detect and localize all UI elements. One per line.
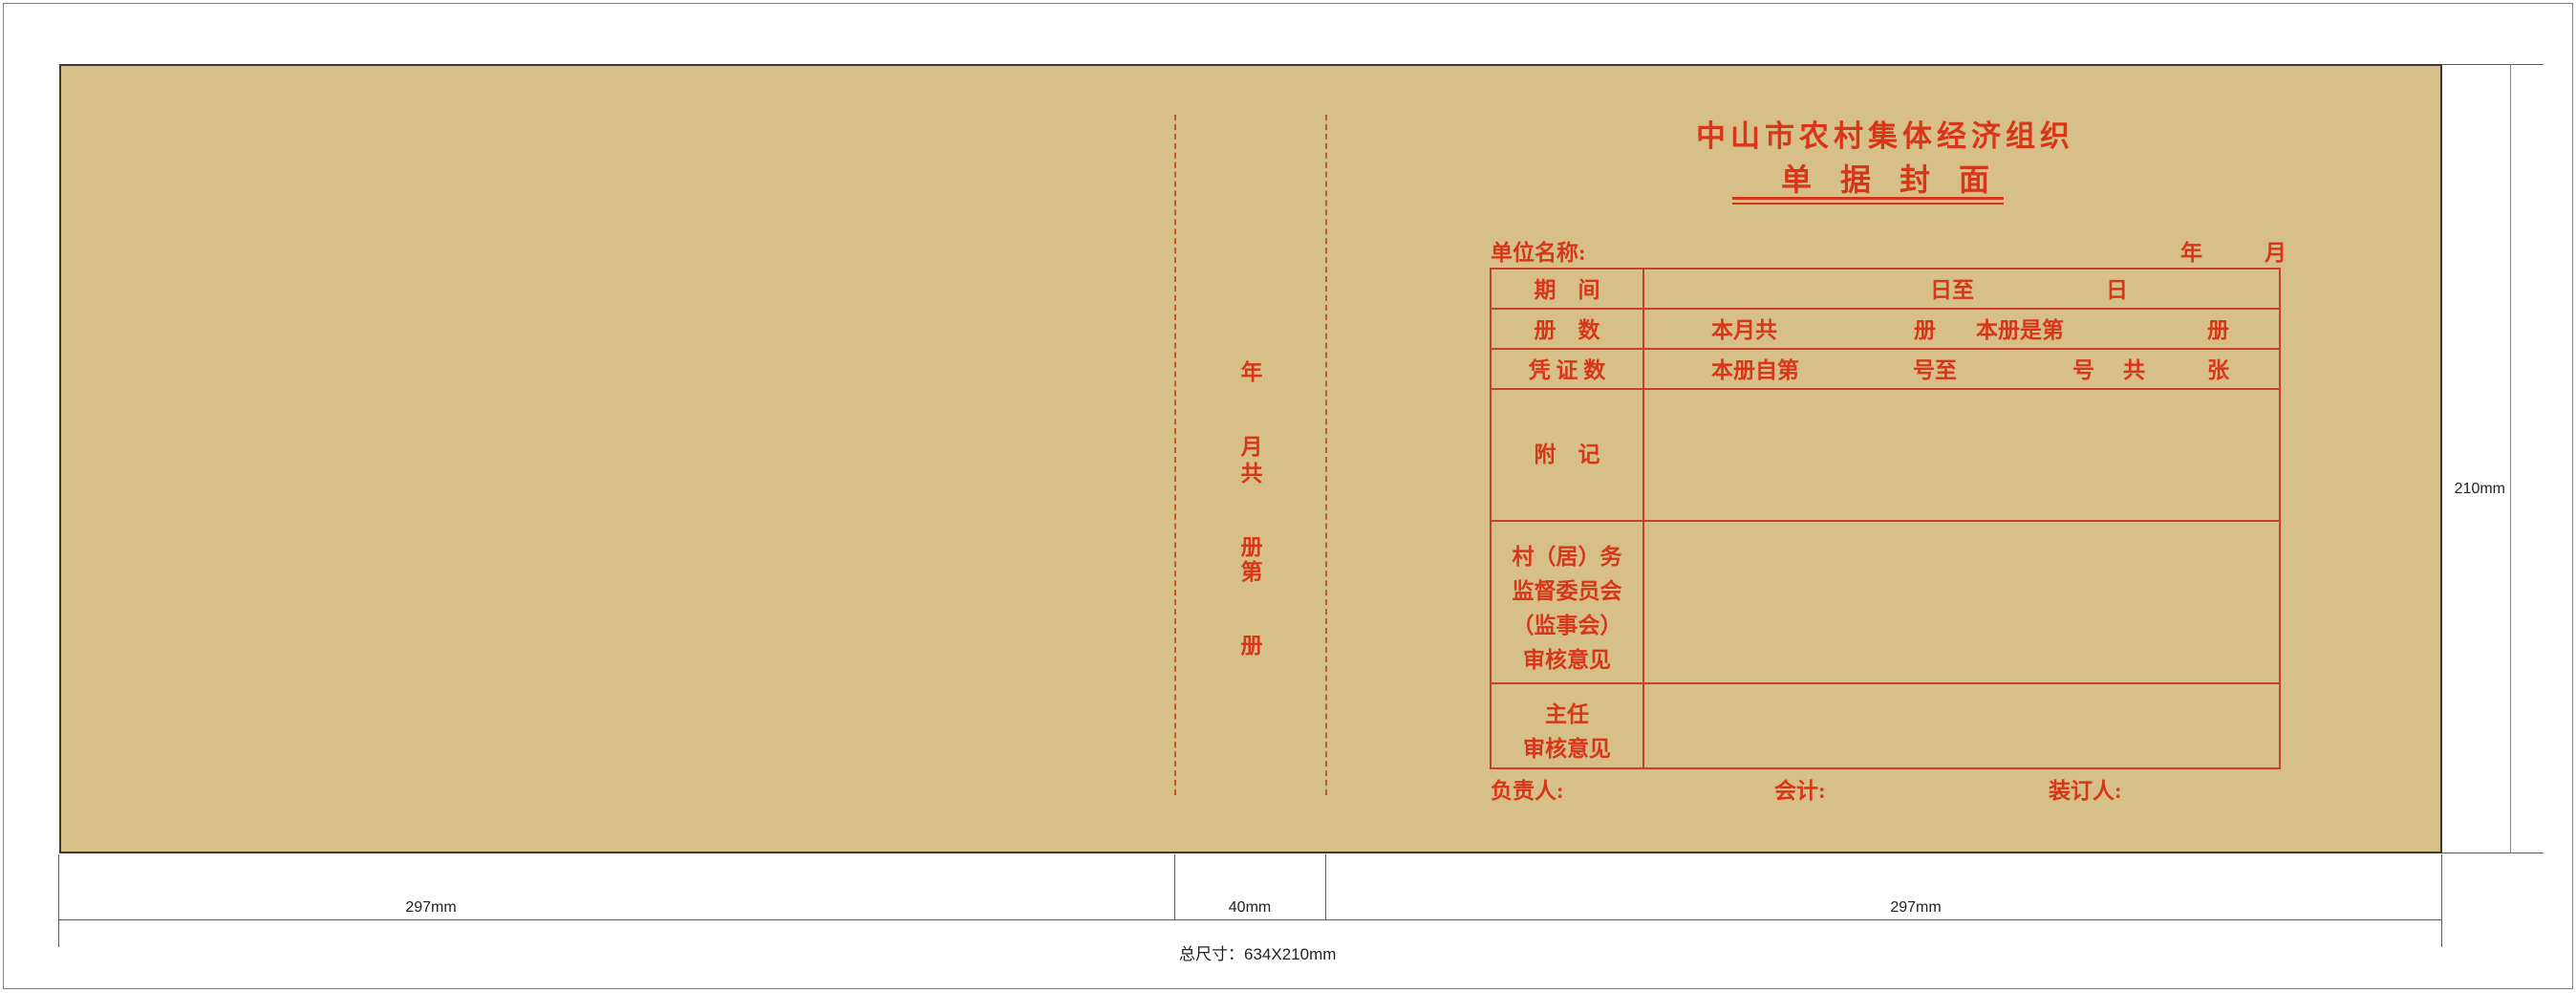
supervision-label-line-4: 审核意见 <box>1492 643 1642 678</box>
voucher-sheets-text: 张 <box>2207 358 2229 383</box>
title-underline-thick <box>1732 197 2004 200</box>
ruler-bottom-line <box>58 919 2442 920</box>
height-dim-line <box>2510 64 2511 853</box>
table-row-line-2 <box>1492 348 2279 350</box>
supervision-label-line-1: 村（居）务 <box>1492 540 1642 574</box>
voucher-total-text: 共 <box>2123 358 2145 383</box>
director-label-line-1: 主任 <box>1492 698 1642 732</box>
voucher-no-text: 号 <box>2072 358 2094 383</box>
height-dim-extension-bottom <box>2442 853 2544 853</box>
row-label-director-opinion: 主任 审核意见 <box>1492 698 1642 766</box>
fold-line-left <box>1174 115 1176 795</box>
voucher-no-to-text: 号至 <box>1913 358 1957 383</box>
spine-char-month: 月 <box>1230 436 1274 459</box>
ruler-tick-left <box>58 854 59 947</box>
table-row-line-3 <box>1492 388 2279 390</box>
dimension-height: 210mm <box>2442 481 2505 498</box>
dimension-total-size: 总尺寸：634X210mm <box>1179 946 1336 963</box>
supervision-label-line-2: 监督委员会 <box>1492 574 1642 609</box>
supervision-label-line-3: （监事会） <box>1492 609 1642 643</box>
spine-char-volume: 册 <box>1230 536 1274 559</box>
volumes-this-month-text: 本月共 <box>1711 318 1777 343</box>
ruler-tick-right <box>2441 854 2442 947</box>
period-day-from-text: 日至 <box>1930 278 1974 303</box>
dimension-spine-width: 40mm <box>1207 899 1293 917</box>
spine-char-number: 第 <box>1230 561 1274 584</box>
month-label: 月 <box>2265 241 2286 266</box>
volume-ordinal-unit-text: 册 <box>2207 318 2229 343</box>
table-row-line-5 <box>1492 682 2279 684</box>
row-label-vouchers: 凭 证 数 <box>1492 358 1642 383</box>
table-row-line-4 <box>1492 520 2279 522</box>
row-label-supervision-committee: 村（居）务 监督委员会 （监事会） 审核意见 <box>1492 540 1642 678</box>
year-label: 年 <box>2180 241 2202 266</box>
row-label-period: 期 间 <box>1492 278 1642 303</box>
dimension-front-panel-width: 297mm <box>1873 899 1959 917</box>
voucher-from-text: 本册自第 <box>1711 358 1799 383</box>
binder-label: 装订人: <box>2049 779 2122 804</box>
print-layout-canvas: 年 月 共 册 第 册 中山市农村集体经济组织 单据封面 单位名称: 年 月 期… <box>0 0 2576 993</box>
spine-char-volume2: 册 <box>1230 635 1274 658</box>
period-day-to-text: 日 <box>2106 278 2128 303</box>
manager-label: 负责人: <box>1491 779 1564 804</box>
spine-char-total: 共 <box>1230 463 1274 486</box>
height-dim-extension-top <box>2442 64 2544 65</box>
cover-info-table: 期 间 册 数 凭 证 数 附 记 村（居）务 监督委员会 （监事会） 审核意见… <box>1490 268 2281 769</box>
ruler-tick-spine-right <box>1325 854 1326 919</box>
row-label-volumes: 册 数 <box>1492 318 1642 343</box>
table-column-divider <box>1642 270 1644 767</box>
title-underline-thin <box>1732 203 2004 205</box>
document-title: 单据封面 <box>1585 162 2185 197</box>
unit-name-label: 单位名称: <box>1491 241 1586 266</box>
dimension-back-panel-width: 297mm <box>388 899 474 917</box>
spine-char-year: 年 <box>1230 361 1274 384</box>
director-label-line-2: 审核意见 <box>1492 732 1642 766</box>
row-label-notes: 附 记 <box>1492 443 1642 467</box>
organization-title: 中山市农村集体经济组织 <box>1585 120 2185 153</box>
volumes-unit-text: 册 <box>1914 318 1936 343</box>
table-row-line-1 <box>1492 308 2279 310</box>
accountant-label: 会计: <box>1774 779 1826 804</box>
volume-ordinal-text: 本册是第 <box>1976 318 2064 343</box>
ruler-tick-spine-left <box>1174 854 1175 919</box>
fold-line-right <box>1325 115 1327 795</box>
